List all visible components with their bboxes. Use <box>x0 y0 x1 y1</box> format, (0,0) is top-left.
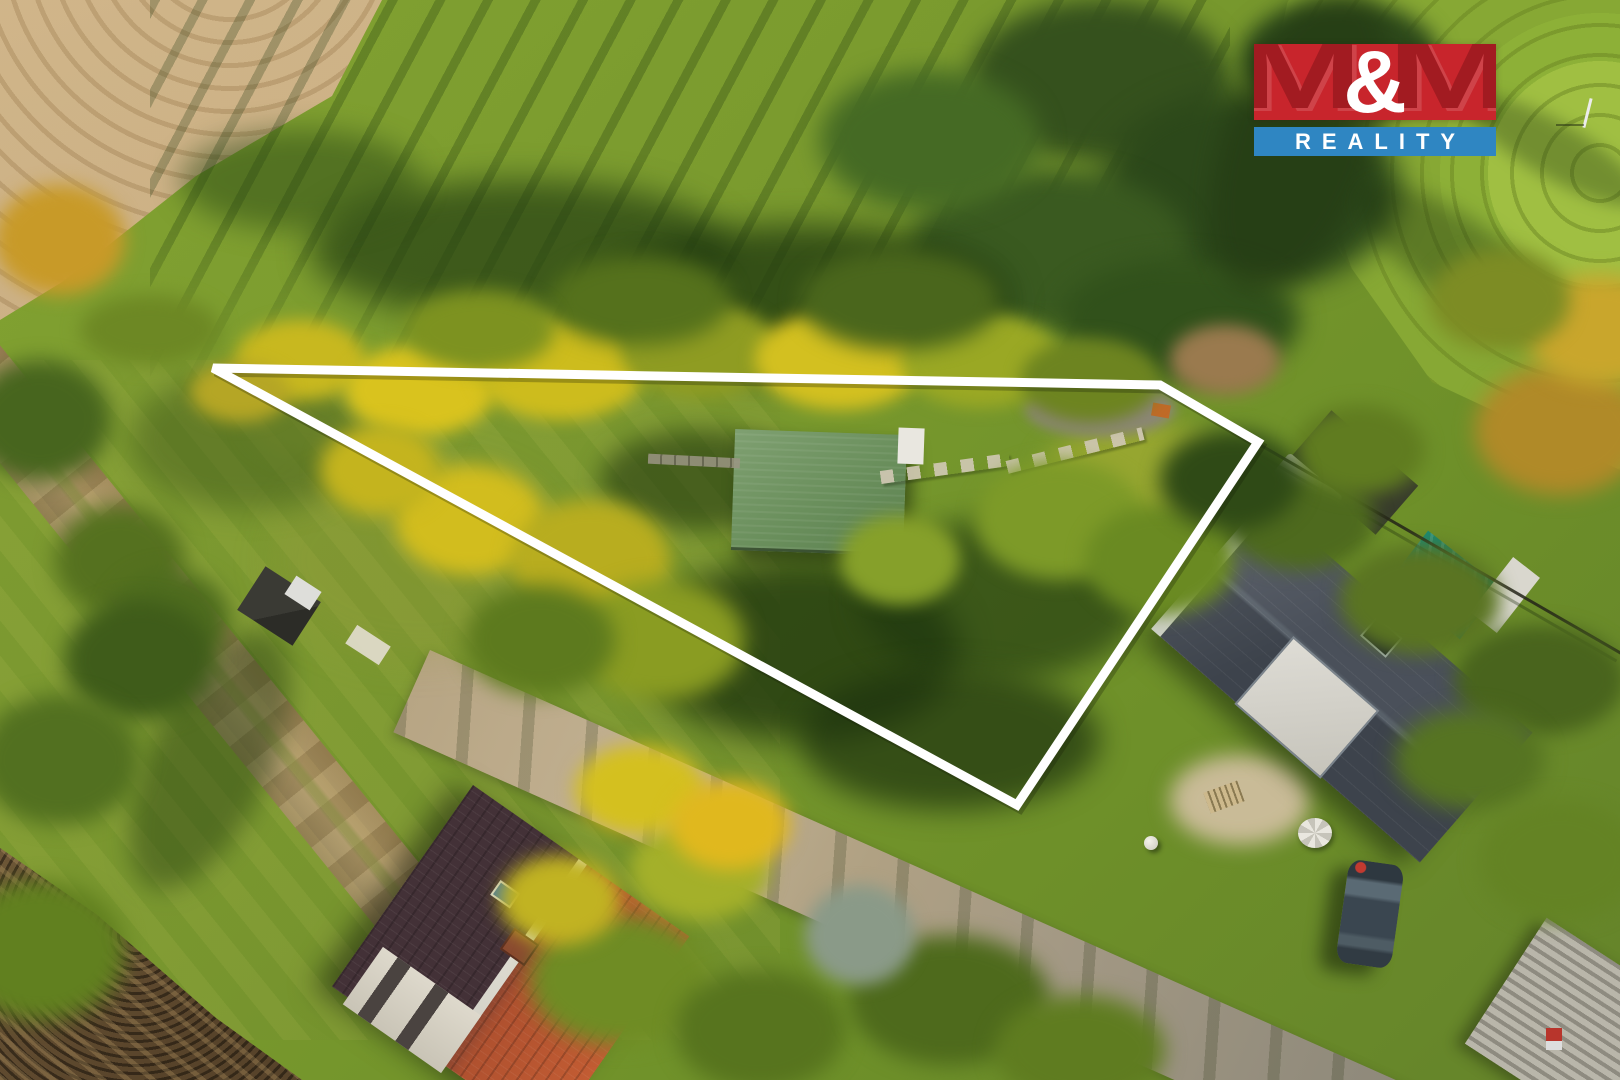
tree-canopy <box>1020 338 1160 423</box>
meadow-shadow <box>180 130 420 230</box>
logo-blue-banner: REALITY <box>1254 127 1496 156</box>
autumn-tree <box>670 780 790 870</box>
cabin-white-corner <box>897 428 924 465</box>
flagstick-shadow <box>1556 124 1584 126</box>
bush <box>1395 710 1545 810</box>
bird-bath <box>1144 836 1158 850</box>
bush <box>1480 800 1620 920</box>
white-barrel <box>1298 818 1332 848</box>
dark-canopy <box>1160 430 1300 530</box>
autumn-tree <box>0 185 125 295</box>
bush <box>840 515 960 605</box>
parked-car <box>1335 859 1405 970</box>
logo-red-box: M M & <box>1254 44 1496 120</box>
autumn-tree <box>320 425 440 515</box>
dark-canopy <box>550 255 730 345</box>
hedge <box>1340 545 1500 655</box>
tree-canopy <box>80 295 220 365</box>
red-post <box>1546 1028 1562 1050</box>
tree-canopy <box>820 70 1040 210</box>
autumn-tree <box>190 362 290 422</box>
dark-canopy <box>465 585 615 695</box>
mm-reality-logo: M M & REALITY <box>1254 44 1496 149</box>
hedge <box>1295 405 1425 495</box>
logo-reality-text: REALITY <box>1284 129 1466 155</box>
soil-patch <box>1170 325 1280 395</box>
corrugated-roof <box>1465 918 1620 1080</box>
bush <box>675 970 845 1080</box>
aerial-photo: M M & REALITY <box>0 0 1620 1080</box>
tree-canopy <box>1430 250 1570 350</box>
plot-shadow <box>800 670 1100 810</box>
silver-juniper <box>805 885 915 985</box>
logo-ampersand: & <box>1254 44 1496 120</box>
dark-canopy <box>800 250 1000 350</box>
autumn-bush <box>500 855 620 945</box>
tree-canopy <box>405 290 555 370</box>
